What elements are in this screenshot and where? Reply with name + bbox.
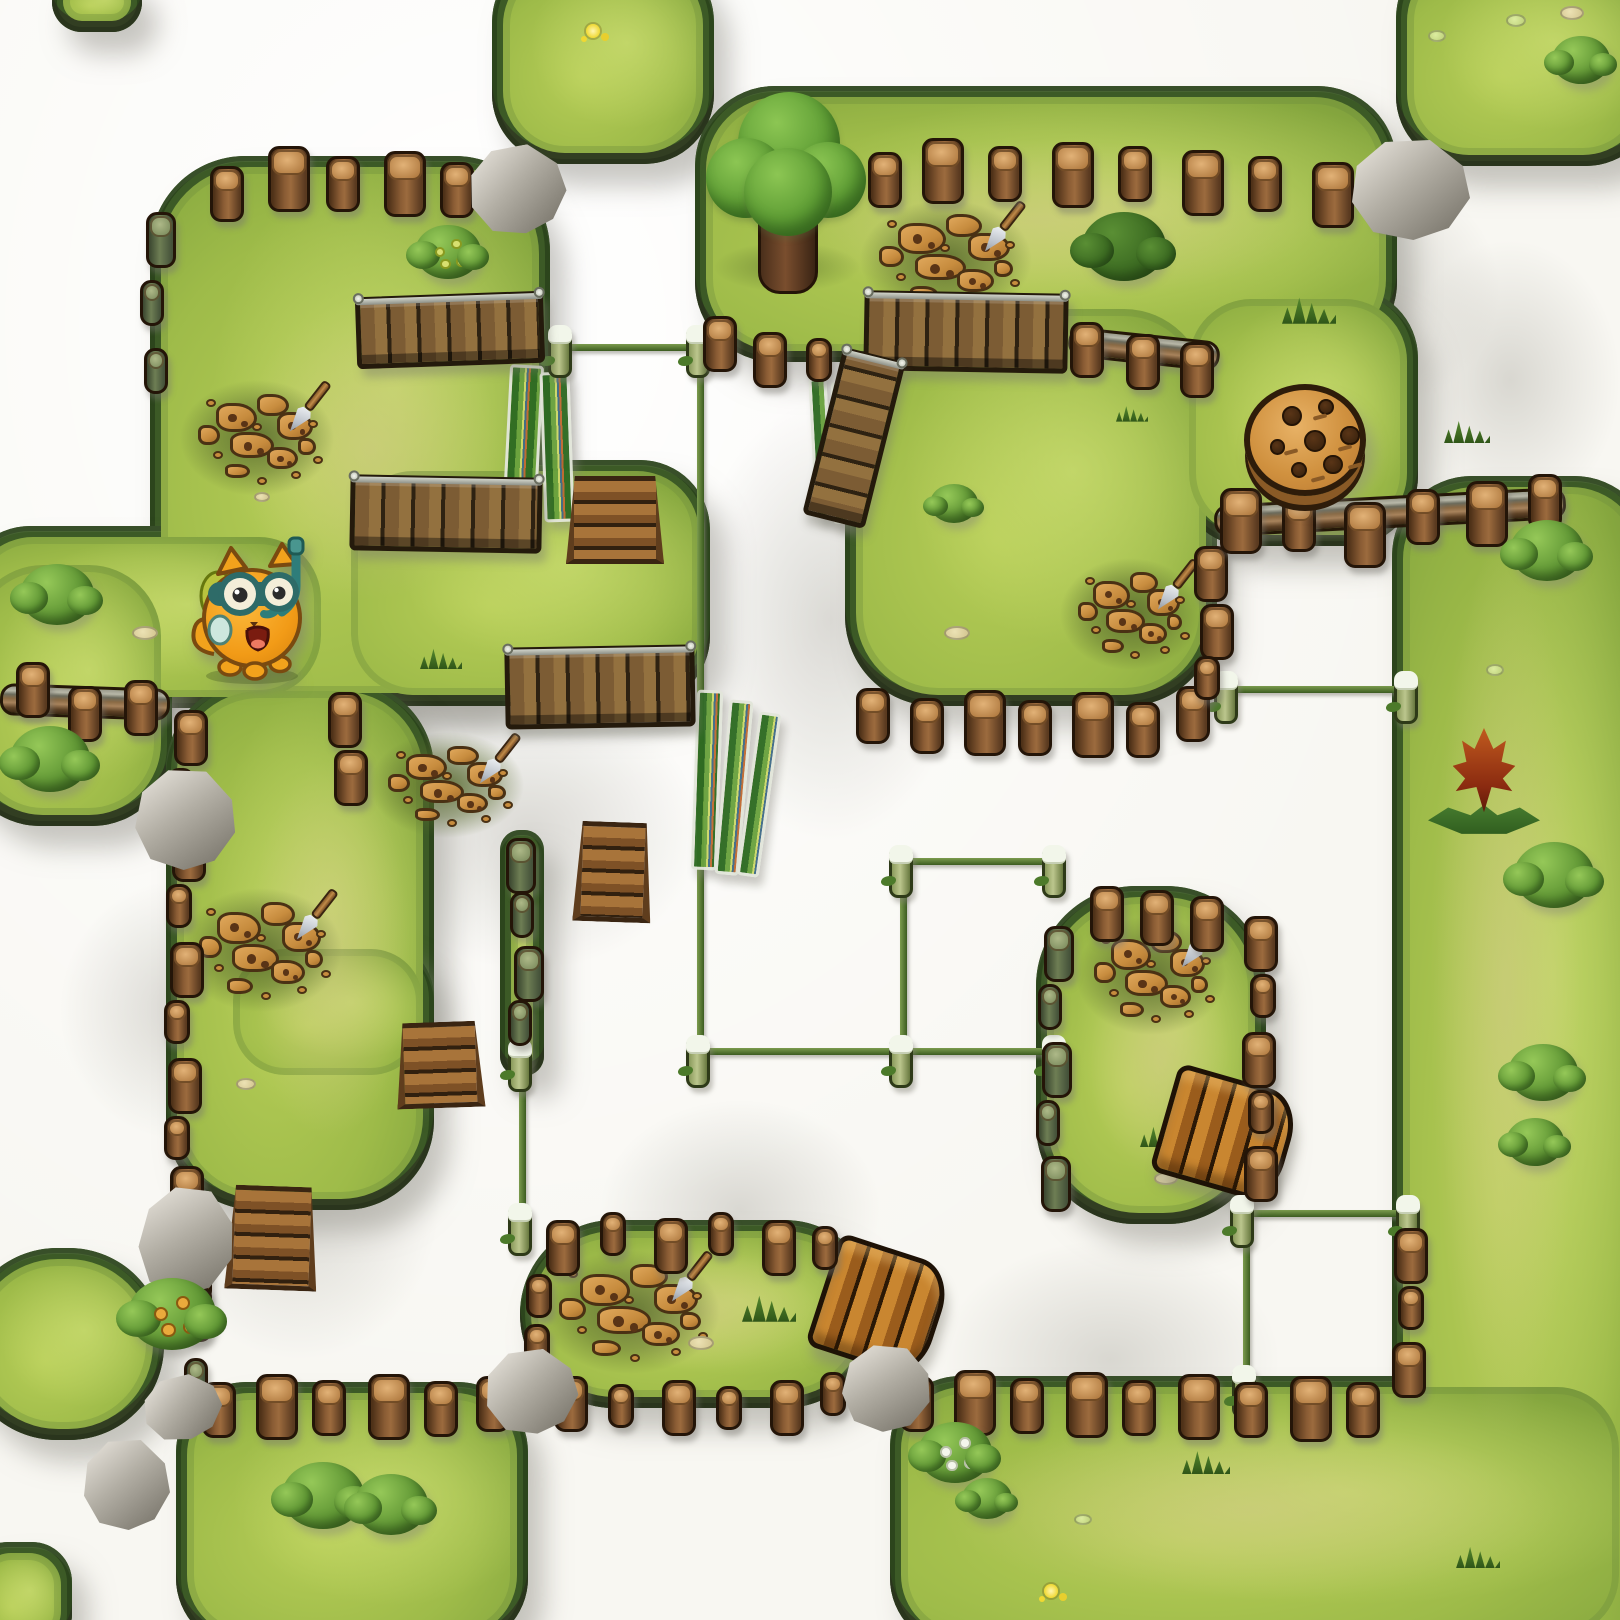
bush-berry <box>415 225 481 279</box>
bush-normal <box>930 484 978 523</box>
bush-flower <box>918 1422 992 1483</box>
log-stump <box>210 166 244 222</box>
log-stump <box>1194 656 1220 700</box>
log-stump <box>144 348 168 394</box>
bamboo-post <box>1230 1196 1254 1248</box>
log-stump <box>1042 1042 1072 1098</box>
log-stump <box>1220 488 1262 554</box>
log-stump <box>124 680 158 736</box>
log-stump <box>600 1212 626 1256</box>
log-stump <box>140 280 164 326</box>
log-stump <box>1070 322 1104 378</box>
worn-dirt-patch <box>1430 540 1580 1440</box>
log-stump <box>546 1220 580 1276</box>
log-stump <box>1398 1286 1424 1330</box>
pebble <box>944 626 970 640</box>
log-stump <box>384 151 426 217</box>
log-stump <box>256 1374 298 1440</box>
log-stump <box>1178 1374 1220 1440</box>
log-stump <box>1052 142 1094 208</box>
pebble <box>254 492 270 502</box>
log-stump <box>1066 1372 1108 1438</box>
log-stump <box>820 1372 846 1416</box>
cat-snorkel-icon <box>184 534 318 684</box>
log-stump <box>506 838 536 894</box>
island-grass-top-left-corner-patch <box>63 0 131 21</box>
log-stump <box>510 892 534 938</box>
worn-dirt-patch <box>940 1420 1560 1600</box>
log-stump <box>1180 342 1214 398</box>
log-stump <box>753 332 787 388</box>
island-grass-top-left-strip <box>503 0 703 153</box>
log-stump <box>268 146 310 212</box>
log-stump <box>1126 702 1160 758</box>
oak-tree <box>712 92 862 297</box>
pebble <box>1486 664 1504 676</box>
bamboo-post <box>889 846 913 898</box>
log-stump <box>608 1384 634 1428</box>
stairs-mid-west <box>395 1020 486 1109</box>
log-stump <box>1041 1156 1071 1212</box>
pebble <box>236 1078 256 1090</box>
log-stump <box>1234 1382 1268 1438</box>
log-stump <box>708 1212 734 1256</box>
rock <box>84 1440 170 1530</box>
log-stump <box>1346 1382 1380 1438</box>
log-stump <box>1242 1032 1276 1088</box>
log-stump <box>368 1374 410 1440</box>
ladder-south-of-pen-a <box>572 821 653 924</box>
log-stump <box>716 1386 742 1430</box>
log-stump <box>910 698 944 754</box>
pebble <box>1074 1514 1092 1525</box>
bush-berry2 <box>128 1278 216 1350</box>
log-stump <box>328 692 362 748</box>
log-stump <box>922 138 964 204</box>
bamboo-post <box>508 1204 532 1256</box>
log-stump <box>1038 984 1062 1030</box>
log-stump <box>988 146 1022 202</box>
stairs-south-west <box>224 1184 320 1291</box>
pen-a-wall-2 <box>349 474 542 553</box>
log-stump <box>1140 890 1174 946</box>
log-stump <box>164 1000 190 1044</box>
bamboo-post <box>686 1036 710 1088</box>
dig-site-west[interactable] <box>196 392 318 484</box>
dig-site-pen[interactable] <box>386 744 508 826</box>
log-stump <box>654 1218 688 1274</box>
vine-path <box>1250 1210 1406 1217</box>
cat-with-snorkel[interactable] <box>184 534 318 684</box>
log-stump <box>1466 481 1508 547</box>
yellow-flower <box>1044 1584 1058 1598</box>
log-stump <box>1312 162 1354 228</box>
dig-site-south[interactable] <box>556 1262 704 1362</box>
bush-normal <box>1510 520 1584 581</box>
log-stump <box>770 1380 804 1436</box>
log-stump <box>1194 546 1228 602</box>
log-stump <box>1182 150 1224 216</box>
dig-site-mid-west[interactable] <box>196 900 326 1000</box>
bush-normal <box>10 726 90 792</box>
log-stump <box>1190 896 1224 952</box>
island-grass-south-west-corner <box>0 1553 61 1620</box>
log-stump <box>1394 1228 1428 1284</box>
log-stump <box>164 1116 190 1160</box>
log-stump <box>146 212 176 268</box>
log-stump <box>856 688 890 744</box>
log-stump <box>1250 974 1276 1018</box>
log-stump <box>1072 692 1114 758</box>
bamboo-post <box>1042 846 1066 898</box>
bamboo-post <box>1394 672 1418 724</box>
log-stump <box>806 338 832 382</box>
log-stump <box>440 162 474 218</box>
pebble <box>1560 6 1584 20</box>
log-stump <box>1122 1380 1156 1436</box>
pebble <box>1506 14 1526 27</box>
log-stump <box>1406 489 1440 545</box>
log-stump <box>1118 146 1152 202</box>
log-stump <box>334 750 368 806</box>
log-stump <box>312 1380 346 1436</box>
log-stump <box>964 690 1006 756</box>
glass-gate-panel <box>539 372 574 523</box>
log-stump <box>812 1226 838 1270</box>
red-fern-plant <box>1428 728 1540 836</box>
vine-path <box>700 1048 1056 1055</box>
bush-normal <box>354 1474 428 1535</box>
bush-normal <box>1506 1118 1564 1166</box>
log-stump <box>166 884 192 928</box>
pen-a-wall-1 <box>355 291 545 370</box>
pebble <box>688 1336 714 1350</box>
bush-normal <box>1552 36 1610 84</box>
bush-normal <box>20 564 94 625</box>
log-stump <box>16 662 50 718</box>
pen-a-wall-3 <box>504 644 695 729</box>
vine-path <box>903 858 1055 865</box>
bush-normal <box>962 1478 1012 1519</box>
log-stump <box>170 942 204 998</box>
stairs-pen-a <box>566 476 664 564</box>
log-stump <box>1018 700 1052 756</box>
log-stump <box>168 1058 202 1114</box>
log-stump <box>174 710 208 766</box>
log-stump <box>762 1220 796 1276</box>
bamboo-post <box>548 326 572 378</box>
log-stump <box>1010 1378 1044 1434</box>
log-stump <box>1244 916 1278 972</box>
bamboo-post <box>889 1036 913 1088</box>
log-stump <box>508 1000 532 1046</box>
log-stump <box>326 156 360 212</box>
vine-path <box>556 344 701 351</box>
log-stump <box>1248 1090 1274 1134</box>
bush-normal <box>1508 1044 1578 1101</box>
log-stump <box>703 316 737 372</box>
log-stump <box>662 1380 696 1436</box>
log-stump <box>514 946 544 1002</box>
dig-site-lobe[interactable] <box>1076 570 1184 658</box>
pebble <box>1428 30 1446 42</box>
bush-normal <box>1514 842 1594 908</box>
vine-path <box>1225 686 1401 693</box>
log-stump <box>1126 334 1160 390</box>
giant-cookie[interactable] <box>1244 384 1366 496</box>
log-stump <box>868 152 902 208</box>
log-stump <box>1344 502 1386 568</box>
log-stump <box>424 1381 458 1437</box>
log-stump <box>1282 496 1316 552</box>
bush-dark <box>1082 212 1166 281</box>
log-stump <box>1244 1146 1278 1202</box>
log-stump <box>1392 1342 1426 1398</box>
log-stump <box>1248 156 1282 212</box>
log-stump <box>1290 1376 1332 1442</box>
log-stump <box>1200 604 1234 660</box>
game-map-viewport: top-down-grass-maze-game-map <box>0 0 1620 1620</box>
bamboo-post <box>508 1040 532 1092</box>
pebble <box>132 626 158 640</box>
log-stump <box>1036 1100 1060 1146</box>
log-stump <box>526 1274 552 1318</box>
yellow-flower <box>586 24 600 38</box>
log-stump <box>1044 926 1074 982</box>
log-stump <box>1090 886 1124 942</box>
game-scene <box>0 0 1620 1620</box>
